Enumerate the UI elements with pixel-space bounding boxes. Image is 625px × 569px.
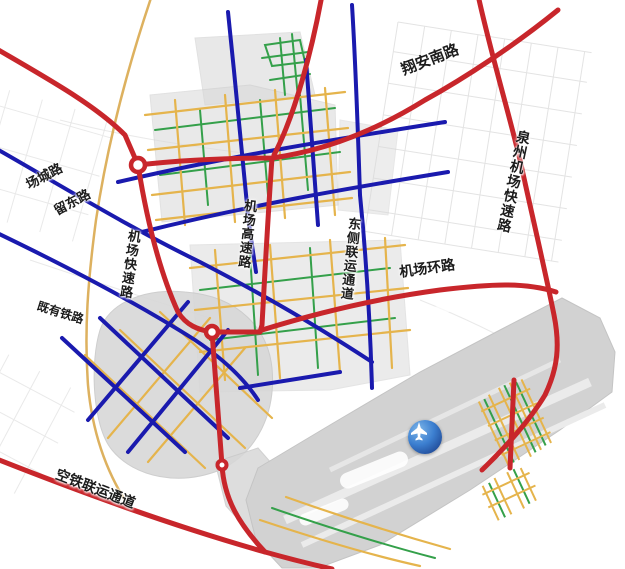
airport-road-network-map: 翔安南路 泉州机场快速路 场城路 留东路 机场快速路 机场高速路 东侧联运通道 … (0, 0, 625, 569)
airport-marker (408, 420, 442, 454)
airplane-icon (408, 420, 430, 442)
